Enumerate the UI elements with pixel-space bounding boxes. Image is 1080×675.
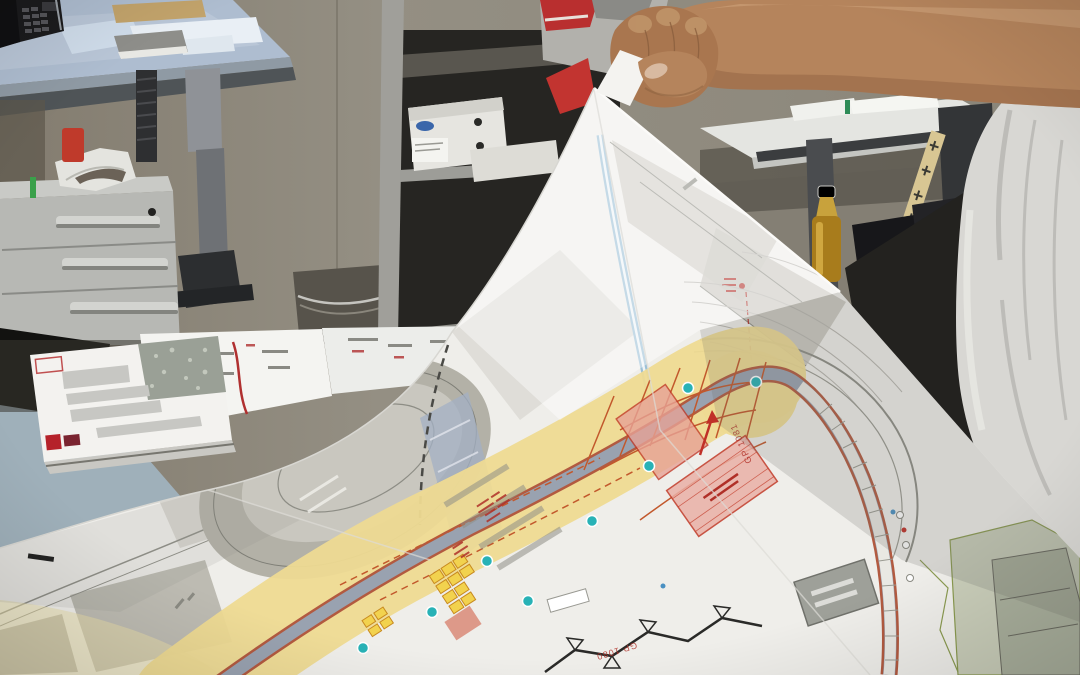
photo-vignette <box>0 0 1080 675</box>
scene-canvas: GP 1081 GP 1080 <box>0 0 1080 675</box>
photo-of-plan-in-office: GP 1081 GP 1080 <box>0 0 1080 675</box>
